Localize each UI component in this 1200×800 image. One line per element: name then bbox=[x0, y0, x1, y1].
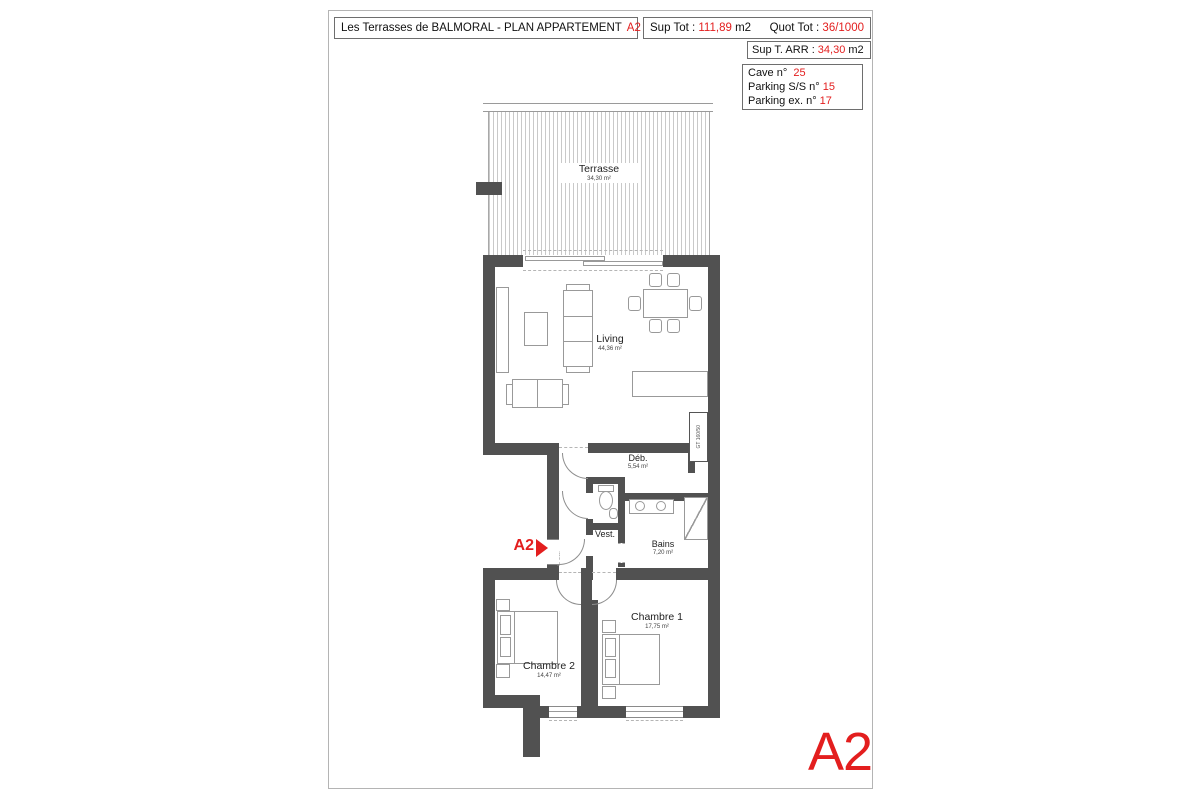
wall-protrusion bbox=[523, 695, 540, 757]
dining-table bbox=[643, 289, 688, 318]
room-area: 7,20 m² bbox=[634, 550, 692, 557]
nightstand-ch2-top bbox=[496, 599, 510, 611]
room-area: 17,75 m² bbox=[624, 624, 690, 631]
dining-chair-top-2 bbox=[667, 273, 680, 287]
pillow-ch1-1 bbox=[605, 638, 616, 657]
sup-arr-label: Sup T. ARR : bbox=[752, 44, 815, 56]
shelf-unit bbox=[496, 287, 509, 373]
room-name: Déb. bbox=[606, 454, 670, 464]
wall-bottom-b bbox=[577, 706, 626, 718]
sofa bbox=[563, 290, 593, 367]
threshold-chambre2 bbox=[559, 572, 581, 573]
wc-sink-icon bbox=[609, 508, 618, 519]
plan-title: Les Terrasses de BALMORAL - PLAN APPARTE… bbox=[341, 22, 622, 34]
nightstand-ch2-bottom bbox=[496, 664, 510, 678]
parking-ss-label: Parking S/S n° bbox=[748, 81, 820, 93]
sliding-door-dash-top bbox=[523, 250, 663, 251]
quot-tot: Quot Tot : 36/1000 bbox=[770, 22, 864, 34]
quot-tot-value: 36/1000 bbox=[822, 22, 864, 34]
sink-right-icon bbox=[656, 501, 666, 511]
dining-chair-bottom-1 bbox=[649, 319, 662, 333]
annex-parking-ss: Parking S/S n° 15 bbox=[748, 80, 835, 94]
wall-left-living bbox=[483, 255, 495, 455]
room-label-terrasse: Terrasse 34,30 m² bbox=[559, 163, 639, 183]
bed-ch2-fold-line bbox=[514, 611, 515, 664]
sup-tot-unit: m2 bbox=[735, 22, 751, 34]
unit-label-large: A2 bbox=[800, 722, 872, 784]
threshold-chambre1 bbox=[592, 572, 616, 573]
window-chambre1-dash bbox=[626, 720, 683, 721]
annex-box: Cave n° 25 Parking S/S n° 15 Parking ex.… bbox=[742, 64, 863, 110]
sofa-armrest-bottom bbox=[566, 366, 590, 373]
dining-chair-right bbox=[689, 296, 702, 311]
sup-tot-label: Sup Tot : bbox=[650, 22, 695, 34]
threshold-bains bbox=[618, 543, 625, 563]
room-label-chambre2: Chambre 2 14,47 m² bbox=[516, 661, 582, 679]
sliding-door-dash-bottom bbox=[523, 270, 663, 271]
wall-between-bedrooms bbox=[581, 600, 598, 708]
parking-ss-value: 15 bbox=[823, 81, 835, 93]
duct-box: GT 160/50 bbox=[689, 412, 708, 462]
room-name: Living bbox=[575, 334, 645, 346]
wall-right bbox=[708, 255, 720, 718]
dining-chair-left bbox=[628, 296, 641, 311]
dining-chair-bottom-2 bbox=[667, 319, 680, 333]
tv-cabinet bbox=[524, 312, 548, 346]
room-name: Chambre 2 bbox=[516, 661, 582, 673]
wall-deb-top bbox=[588, 443, 689, 453]
surface-box: Sup Tot : 111,89 m2 Quot Tot : 36/1000 bbox=[643, 17, 871, 39]
pillow-ch2-1 bbox=[500, 615, 511, 635]
cave-value: 25 bbox=[793, 67, 805, 79]
title-box: Les Terrasses de BALMORAL - PLAN APPARTE… bbox=[334, 17, 638, 39]
room-label-deb: Déb. 5,54 m² bbox=[606, 454, 670, 470]
quot-tot-label: Quot Tot : bbox=[770, 22, 820, 34]
entrance-unit-label: A2 bbox=[504, 537, 534, 557]
shower-icon bbox=[684, 497, 708, 540]
room-area: 14,47 m² bbox=[516, 673, 582, 680]
room-name: Vest. bbox=[590, 530, 620, 540]
nightstand-ch1-top bbox=[602, 620, 616, 633]
wall-bottom-a bbox=[540, 706, 549, 718]
loveseat-armrest-right bbox=[562, 384, 569, 405]
pillow-ch2-2 bbox=[500, 637, 511, 657]
room-name: Terrasse bbox=[559, 164, 639, 176]
loveseat-seat-line bbox=[537, 379, 538, 408]
wall-hall-left-upper bbox=[547, 455, 559, 539]
annex-parking-ex: Parking ex. n° 17 bbox=[748, 94, 832, 108]
terrace-wall-stub bbox=[476, 182, 502, 195]
terrace-roof-line bbox=[483, 103, 713, 112]
parking-ex-value: 17 bbox=[820, 95, 832, 107]
window-chambre2-dash bbox=[549, 720, 577, 721]
plan-title-unit: A2 bbox=[627, 22, 641, 34]
sup-arr-unit: m2 bbox=[848, 44, 863, 56]
entrance-arrow-icon bbox=[536, 539, 548, 557]
pillow-ch1-2 bbox=[605, 659, 616, 678]
cave-label: Cave n° bbox=[748, 67, 787, 79]
nightstand-ch1-bottom bbox=[602, 686, 616, 699]
wall-bedrooms-top-left bbox=[483, 568, 559, 580]
sink-left-icon bbox=[635, 501, 645, 511]
sup-tot: Sup Tot : 111,89 m2 bbox=[650, 22, 751, 34]
threshold-hall bbox=[559, 447, 588, 448]
wall-left-chambre2 bbox=[483, 568, 495, 705]
room-area: 44,36 m² bbox=[575, 346, 645, 353]
sup-arr-value: 34,30 bbox=[818, 44, 846, 56]
room-label-chambre1: Chambre 1 17,75 m² bbox=[624, 612, 690, 630]
room-area: 34,30 m² bbox=[559, 176, 639, 183]
sup-tot-value: 111,89 bbox=[698, 22, 731, 34]
room-name: Chambre 1 bbox=[624, 612, 690, 624]
room-label-bains: Bains 7,20 m² bbox=[634, 540, 692, 556]
window-chambre1 bbox=[626, 706, 683, 718]
annex-cave: Cave n° 25 bbox=[748, 66, 806, 80]
terrace-surface-box: Sup T. ARR : 34,30 m2 bbox=[747, 41, 871, 59]
dining-chair-top-1 bbox=[649, 273, 662, 287]
sofa-seat-line-1 bbox=[563, 316, 593, 317]
floor-plan-page: Les Terrasses de BALMORAL - PLAN APPARTE… bbox=[0, 0, 1200, 800]
terrace-decking bbox=[488, 112, 710, 255]
sideboard bbox=[632, 371, 708, 397]
room-name: Bains bbox=[634, 540, 692, 550]
room-label-living: Living 44,36 m² bbox=[575, 334, 645, 352]
bed-ch1-fold-line bbox=[619, 634, 620, 685]
parking-ex-label: Parking ex. n° bbox=[748, 95, 817, 107]
wall-bedrooms-top-stub bbox=[581, 568, 592, 602]
wall-bedrooms-top-right bbox=[616, 568, 720, 580]
window-chambre2 bbox=[549, 706, 577, 718]
wall-step bbox=[483, 443, 559, 455]
room-area: 5,54 m² bbox=[606, 464, 670, 471]
entrance-opening bbox=[547, 539, 559, 565]
duct-label: GT 160/50 bbox=[696, 425, 702, 449]
room-label-vest: Vest. bbox=[590, 530, 620, 540]
wall-bottom-c bbox=[683, 706, 720, 718]
sliding-door-panel-right bbox=[583, 261, 663, 266]
